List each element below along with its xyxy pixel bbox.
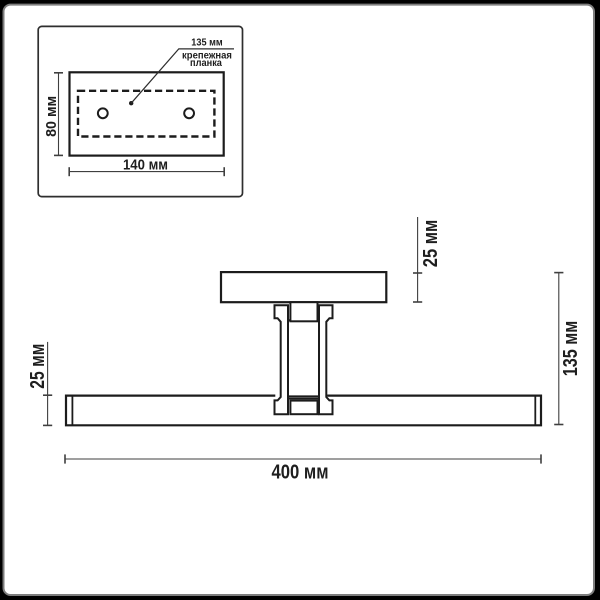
svg-text:80 мм: 80 мм [43,96,60,137]
svg-text:25 мм: 25 мм [27,344,49,389]
svg-text:400 мм: 400 мм [272,462,329,484]
svg-text:25 мм: 25 мм [420,220,442,268]
svg-text:планка: планка [190,57,222,69]
svg-text:140 мм: 140 мм [123,157,168,174]
svg-text:135 мм: 135 мм [560,321,582,377]
svg-text:135 мм: 135 мм [191,38,222,49]
